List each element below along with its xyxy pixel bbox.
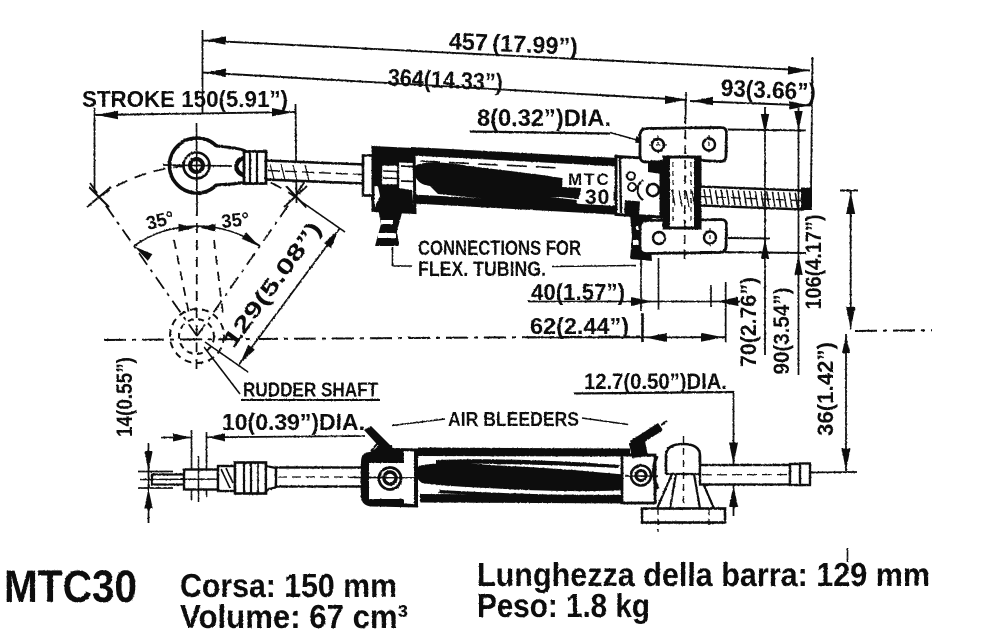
svg-text:14(0.55”): 14(0.55”): [112, 357, 137, 437]
svg-text:364(14.33”): 364(14.33”): [387, 64, 503, 96]
svg-text:8(0.32”)DIA.: 8(0.32”)DIA.: [477, 105, 611, 132]
svg-text:CONNECTIONS FOR: CONNECTIONS FOR: [418, 237, 581, 260]
svg-text:62(2.44”): 62(2.44”): [530, 313, 629, 339]
svg-text:RUDDER SHAFT: RUDDER SHAFT: [243, 380, 378, 402]
svg-text:36(1.42”): 36(1.42”): [813, 342, 838, 436]
svg-text:STROKE 150(5.91”): STROKE 150(5.91”): [82, 86, 288, 112]
svg-text:106(4.17”): 106(4.17”): [801, 215, 826, 310]
svg-text:35°: 35°: [220, 209, 250, 233]
svg-text:12.7(0.50”)DIA.: 12.7(0.50”)DIA.: [584, 369, 727, 394]
svg-text:93(3.66”): 93(3.66”): [720, 75, 816, 106]
svg-text:70(2.76”): 70(2.76”): [736, 277, 761, 367]
svg-text:10(0.39”)DIA.: 10(0.39”)DIA.: [222, 409, 365, 435]
svg-text:FLEX. TUBING.: FLEX. TUBING.: [418, 258, 546, 281]
svg-text:30: 30: [585, 186, 610, 209]
svg-text:AIR BLEEDERS: AIR BLEEDERS: [448, 409, 579, 431]
svg-text:Peso: 1.8 kg: Peso: 1.8 kg: [477, 587, 650, 624]
svg-text:Volume: 67 cm³: Volume: 67 cm³: [180, 598, 408, 635]
svg-text:90(3.54”): 90(3.54”): [769, 288, 794, 375]
svg-text:MTC30: MTC30: [4, 561, 137, 612]
